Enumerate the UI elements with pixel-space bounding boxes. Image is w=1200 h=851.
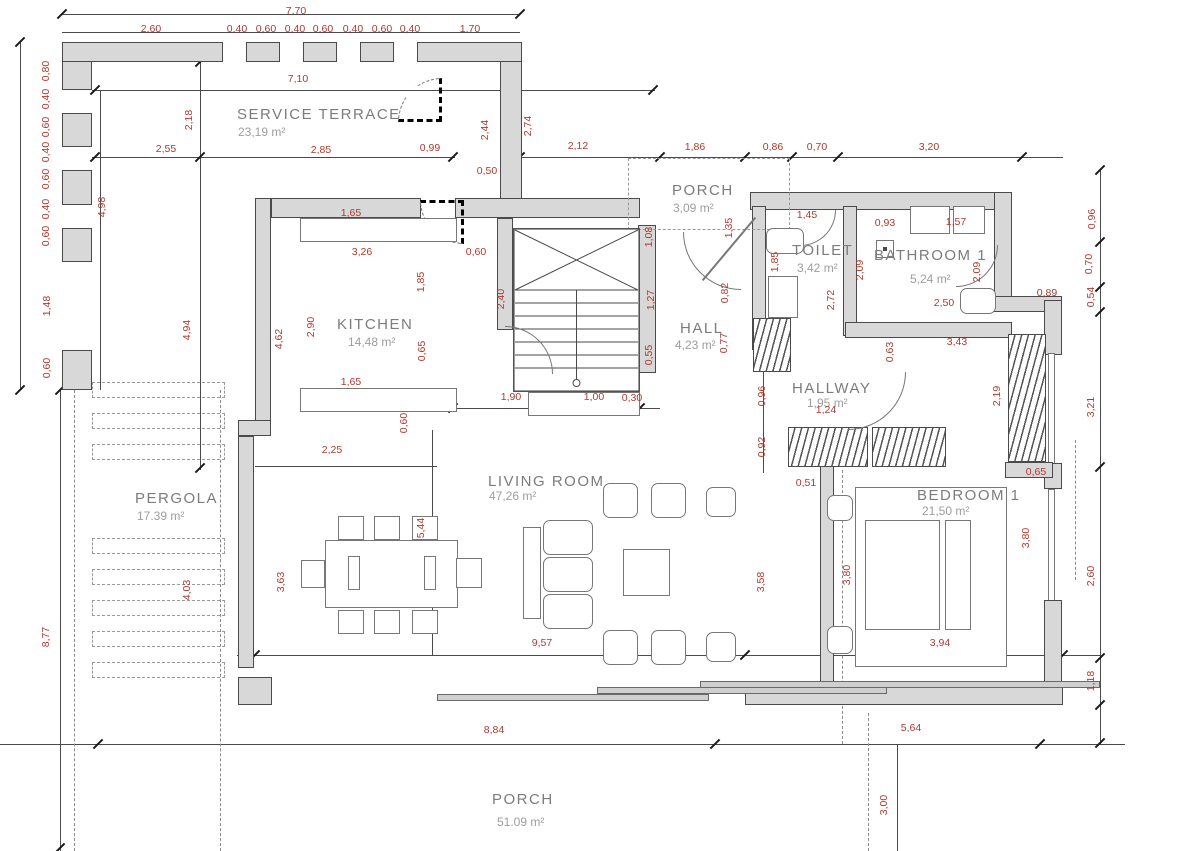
exterior-wall [455,198,640,218]
pergola-beam [92,569,225,585]
kitchen-counter [300,218,457,242]
dining-table [325,540,458,608]
dimension-label: 2,60 [141,24,161,35]
dimension-label: 1,65 [341,208,361,219]
dimension-label: 4,94 [182,320,193,340]
pergola-beam [92,413,225,429]
dimension-label: 2,25 [322,445,342,456]
dimension-label: 0,40 [227,24,247,35]
dim-line [200,62,201,470]
dimension-label: 0,60 [399,413,410,433]
dimension-label: 5,64 [901,723,921,734]
room-area-kitchen-4: 14,48 m² [348,335,395,349]
dimension-label: 7,10 [288,74,308,85]
dimension-label: 3,63 [276,572,287,592]
interior-wall [497,218,513,330]
dimension-label: 1,70 [460,24,480,35]
dim-line [0,744,1125,745]
dining-chair [412,610,438,634]
dim-line [100,90,101,390]
room-label-pergola-7: PERGOLA [135,490,218,507]
dim-line [92,157,455,158]
sofa-seat [543,594,593,629]
pouffe [651,483,686,518]
dimension-label: 0,54 [1086,287,1097,307]
room-area-bathroom-1-3: 5,24 m² [910,272,951,286]
pouffe [706,487,736,517]
dimension-label: 2,18 [184,110,195,130]
dimension-label: 4,98 [97,197,108,217]
dimension-label: 2,09 [972,262,983,282]
room-label-toilet-2: TOILET [792,242,853,259]
dimension-label: 2,85 [311,145,331,156]
wardrobe [788,427,868,467]
dashed-reference [868,713,869,851]
sliding-door-panel [700,681,1100,688]
window-pier [246,42,280,62]
door-arc [683,232,741,290]
dimension-label: 0,89 [1037,288,1057,299]
dim-line [20,42,21,390]
dimension-label: 2,12 [568,141,588,152]
dimension-label: 0,99 [420,143,440,154]
dimension-label: 1,57 [946,217,966,228]
room-label-service-terrace-0: SERVICE TERRACE [237,106,401,123]
table-runner [348,556,360,590]
dining-chair [301,560,325,588]
dimension-label: 0,60 [372,24,392,35]
room-area-pergola-7: 17.39 m² [137,509,184,523]
dimension-label: 0,70 [1084,254,1095,274]
room-area-toilet-2: 3,42 m² [797,261,838,275]
dimension-label: 2,09 [855,260,866,280]
exterior-wall [255,198,271,436]
floor-plan: SERVICE TERRACE23,19 m²PORCH3,09 m²TOILE… [0,0,1200,851]
dimension-label: 3,58 [756,572,767,592]
dining-chair [374,516,400,540]
dimension-label: 0,82 [720,283,731,303]
pergola-beam [92,382,225,398]
dimension-label: 8,77 [41,627,52,647]
pillar [62,113,92,147]
dimension-label: 1,00 [584,392,604,403]
dining-chair [456,558,482,588]
dimension-label: 2,60 [1086,566,1097,586]
dimension-label: 1,45 [797,210,817,221]
dimension-label: 9,57 [532,638,552,649]
dimension-label: 2,40 [496,289,507,309]
window-pier [360,42,394,62]
dining-chair [338,610,364,634]
dimension-label: 1,18 [1086,671,1097,691]
dimension-label: 0,96 [757,386,768,406]
dimension-label: 0,60 [42,358,53,378]
dimension-label: 2,19 [992,386,1003,406]
exterior-wall [417,42,522,62]
bed-mattress [865,520,940,630]
room-area-living-room-8: 47,26 m² [489,489,536,503]
dimension-label: 0,60 [41,117,52,137]
bed-pillow [945,520,971,630]
dimension-label: 4,62 [274,329,285,349]
dimension-label: 0,96 [1087,209,1098,229]
dimension-label: 1,27 [646,290,657,310]
dimension-label: 0,80 [41,61,52,81]
room-label-living-room-8: LIVING ROOM [488,473,605,490]
dining-chair [374,610,400,634]
dim-line [897,745,898,851]
dimension-label: 0,63 [885,342,896,362]
room-area-porch-1: 3,09 m² [673,201,714,215]
kitchen-counter [300,388,457,412]
dashed-reference [1075,440,1076,580]
dining-chair [338,516,364,540]
dimension-label: 0,50 [477,166,497,177]
dimension-label: 0,30 [622,393,642,404]
dimension-label: 0,77 [719,333,730,353]
interior-wall [845,322,1012,338]
dimension-label: 0,92 [757,437,768,457]
sliding-door-panel [597,687,887,694]
dimension-label: 4,03 [182,580,193,600]
dimension-label: 3,80 [842,565,853,585]
dimension-label: 2,50 [934,298,954,309]
exterior-wall [1044,300,1062,355]
pillar [62,350,92,390]
room-label-bedroom-1-9: BEDROOM 1 [917,487,1021,504]
dimension-label: 0,40 [343,24,363,35]
dim-line [60,390,61,851]
pergola-beam [92,631,225,647]
dimension-label: 0,65 [417,341,428,361]
dim-line [92,90,655,91]
exterior-wall [238,420,271,436]
pillar [62,228,92,262]
dimension-label: 0,40 [400,24,420,35]
pouffe [651,630,686,665]
pouffe [603,630,638,665]
pouffe [706,632,736,662]
dimension-label: 0,65 [1026,467,1046,478]
dimension-label: 0,55 [644,345,655,365]
dimension-label: 2,55 [156,144,176,155]
sofa-back [523,527,541,619]
dimension-label: 3,43 [947,337,967,348]
dimension-label: 1,24 [816,405,836,416]
sliding-door-panel [437,694,709,701]
door-arc [398,78,442,122]
dimension-label: 7,70 [286,6,306,17]
dimension-label: 0,40 [41,142,52,162]
closet [753,318,791,372]
dimension-label: 0,40 [41,89,52,109]
dimension-label: 2,90 [306,317,317,337]
table-runner [424,556,436,590]
pergola-beam [92,662,225,678]
corner-wall [62,61,92,90]
room-area-bedroom-1-9: 21,50 m² [922,504,969,518]
room-area-porch-10: 51.09 m² [497,815,544,829]
dimension-label: 2,72 [826,290,837,310]
pillar [238,677,272,705]
dimension-label: 0,51 [796,478,816,489]
dimension-label: 0,60 [313,24,333,35]
dim-line [255,466,437,467]
dimension-label: 1,90 [501,392,521,403]
toilet-basin [768,276,798,318]
bathroom-sink [910,206,950,234]
pergola-dashed-edge [74,390,75,851]
wardrobe [872,427,946,467]
dimension-label: 0,60 [466,247,486,258]
pouffe [603,483,638,518]
pillar [62,170,92,205]
dimension-label: 0,60 [41,169,52,189]
room-label-porch-10: PORCH [492,791,554,808]
dimension-label: 0,40 [285,24,305,35]
room-area-hall-5: 4,23 m² [675,338,716,352]
coffee-table [623,549,670,596]
window [1048,489,1055,602]
dimension-label: 0,60 [256,24,276,35]
dimension-label: 8,84 [484,725,504,736]
dimension-label: 3,94 [930,638,950,649]
dimension-label: 1,35 [724,218,735,238]
sofa-seat [543,520,593,555]
room-label-hallway-6: HALLWAY [792,380,871,397]
dimension-label: 1,85 [770,252,781,272]
dimension-label: 1,86 [685,142,705,153]
dimension-label: 5,44 [416,518,427,538]
room-label-kitchen-4: KITCHEN [337,316,413,333]
exterior-wall [238,436,254,668]
dimension-label: 3,26 [352,247,372,258]
sofa-seat [543,557,593,592]
dimension-label: 3,80 [1021,528,1032,548]
exterior-wall [62,42,223,62]
dimension-label: 2,44 [480,120,491,140]
window [1048,353,1055,465]
interior-wall [500,61,522,209]
dimension-label: 0,40 [41,199,52,219]
dimension-label: 1,08 [644,227,655,247]
dimension-label: 1,65 [341,377,361,388]
room-area-service-terrace-0: 23,19 m² [238,125,285,139]
nightstand [827,495,853,521]
pergola-beam [92,538,225,554]
dimension-label: 2,74 [523,116,534,136]
window-pier [303,42,337,62]
dimension-label: 0,93 [875,218,895,229]
pergola-beam [92,600,225,616]
wardrobe [1008,334,1046,462]
dimension-label: 0,86 [763,142,783,153]
dimension-label: 0,60 [41,226,52,246]
dimension-label: 3,21 [1086,397,1097,417]
room-label-porch-1: PORCH [672,182,734,199]
dimension-label: 1,85 [416,272,427,292]
dimension-label: 0,70 [807,142,827,153]
dimension-label: 1,48 [42,296,53,316]
dimension-label: 3,00 [879,795,890,815]
pergola-beam [92,444,225,460]
bathroom-wc [960,288,996,314]
nightstand [827,626,853,654]
dimension-label: 3,20 [919,142,939,153]
